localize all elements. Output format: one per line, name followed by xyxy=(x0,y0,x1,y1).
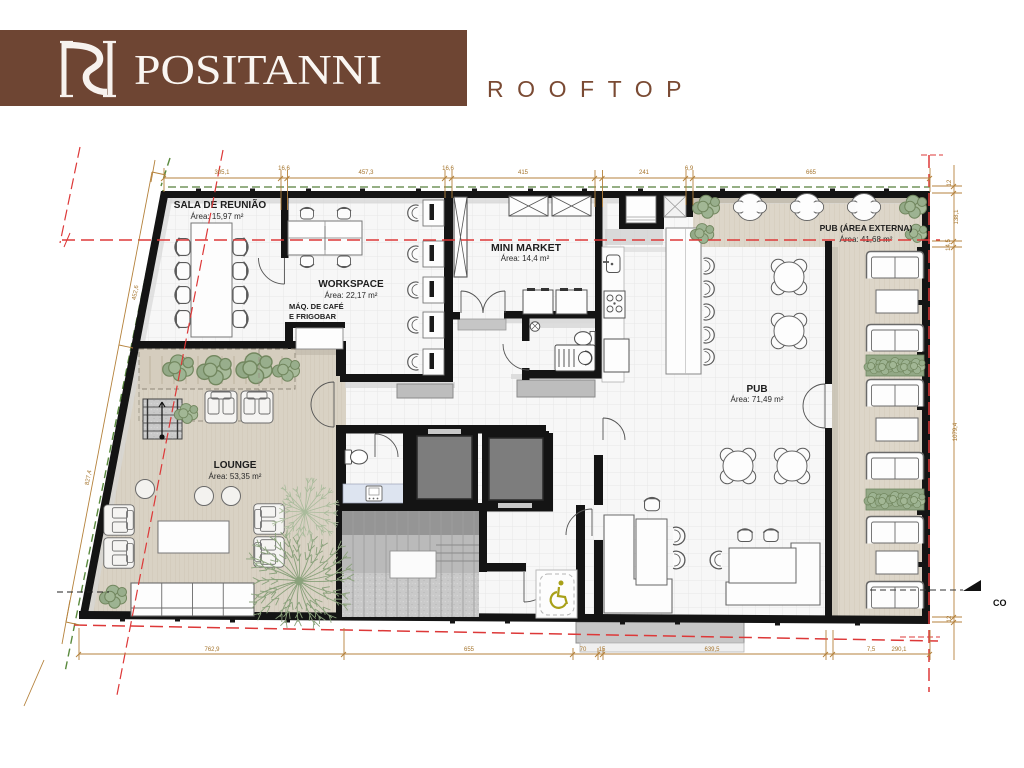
svg-text:WORKSPACE: WORKSPACE xyxy=(318,279,384,290)
svg-text:MINI MARKET: MINI MARKET xyxy=(491,242,562,254)
svg-text:241: 241 xyxy=(639,170,650,176)
svg-text:70: 70 xyxy=(580,647,587,653)
svg-text:Área: 22,17 m²: Área: 22,17 m² xyxy=(325,291,378,300)
svg-text:6,9: 6,9 xyxy=(685,166,694,172)
svg-text:Área: 15,97 m²: Área: 15,97 m² xyxy=(191,212,244,221)
svg-text:Área: 53,35 m²: Área: 53,35 m² xyxy=(209,472,262,481)
svg-text:E FRIGOBAR: E FRIGOBAR xyxy=(289,312,337,321)
svg-text:MÁQ. DE CAFÉ: MÁQ. DE CAFÉ xyxy=(289,302,344,311)
svg-text:12: 12 xyxy=(947,615,953,622)
svg-text:PUB (ÁREA EXTERNA): PUB (ÁREA EXTERNA) xyxy=(820,223,913,233)
svg-text:ROOFTOP: ROOFTOP xyxy=(487,76,693,102)
svg-text:415: 415 xyxy=(518,170,529,176)
svg-text:665: 665 xyxy=(806,170,817,176)
svg-text:PUB: PUB xyxy=(746,384,767,395)
svg-text:639,5: 639,5 xyxy=(704,647,720,653)
svg-text:7,5: 7,5 xyxy=(867,647,876,653)
svg-text:16,6: 16,6 xyxy=(278,166,290,172)
svg-text:655: 655 xyxy=(464,647,475,653)
svg-text:762,9: 762,9 xyxy=(204,647,220,653)
svg-text:LOUNGE: LOUNGE xyxy=(214,460,257,471)
svg-text:1079,4: 1079,4 xyxy=(953,422,959,441)
svg-text:POSITANNI: POSITANNI xyxy=(134,48,382,94)
svg-text:15: 15 xyxy=(599,647,606,653)
svg-text:CO: CO xyxy=(993,598,1007,608)
svg-text:138,1: 138,1 xyxy=(954,209,960,225)
svg-text:14,5: 14,5 xyxy=(946,239,952,251)
svg-text:SALA DE REUNIÃO: SALA DE REUNIÃO xyxy=(174,198,267,211)
svg-text:Área: 14,4 m²: Área: 14,4 m² xyxy=(501,254,550,263)
svg-text:457,3: 457,3 xyxy=(358,170,374,176)
svg-text:290,1: 290,1 xyxy=(891,647,907,653)
svg-text:305,1: 305,1 xyxy=(214,170,230,176)
svg-text:12: 12 xyxy=(947,179,953,186)
svg-text:16,6: 16,6 xyxy=(442,166,454,172)
svg-text:Área: 71,49 m²: Área: 71,49 m² xyxy=(731,395,784,404)
